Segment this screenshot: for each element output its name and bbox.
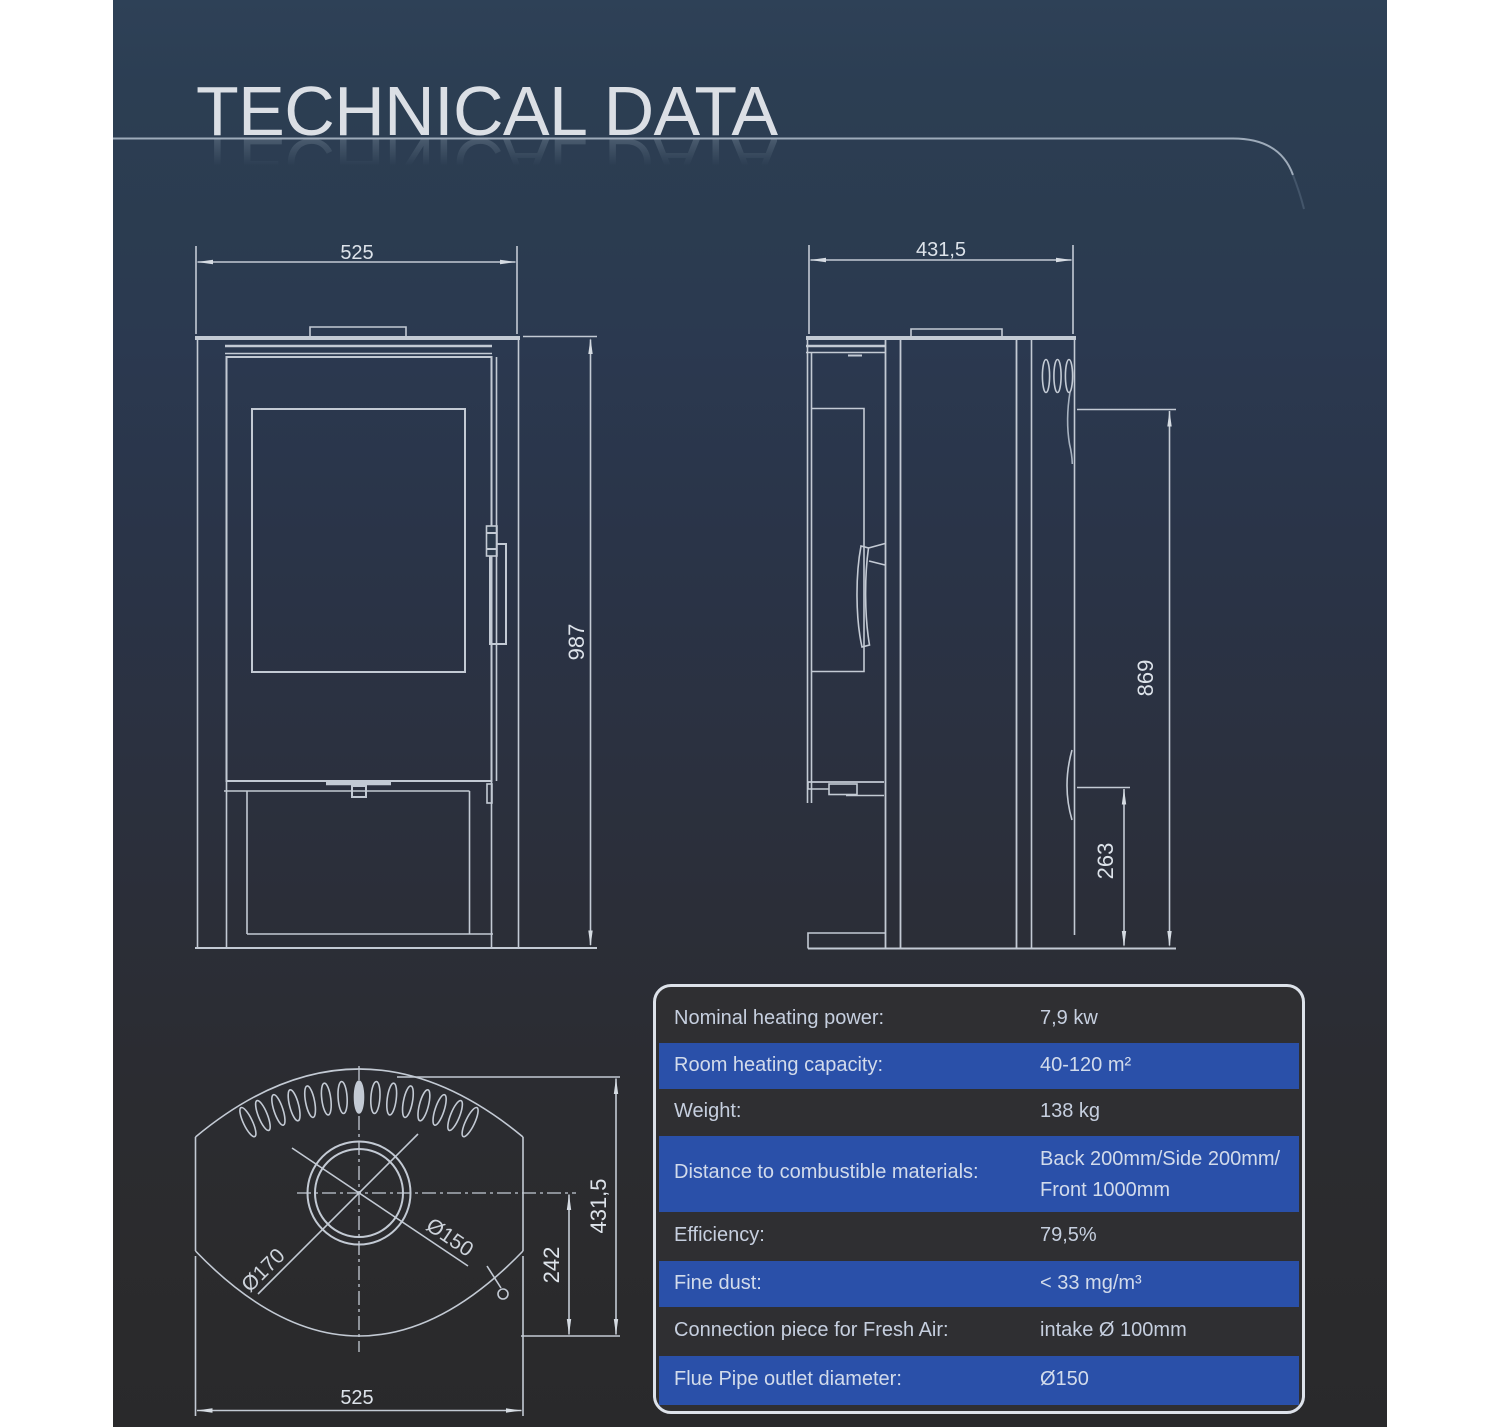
svg-text:242: 242 [539, 1247, 564, 1284]
svg-text:431,5: 431,5 [916, 239, 966, 261]
svg-text:987: 987 [564, 624, 589, 661]
svg-text:263: 263 [1093, 843, 1118, 880]
svg-text:869: 869 [1133, 660, 1158, 697]
svg-text:525: 525 [340, 1387, 373, 1409]
svg-text:431,5: 431,5 [586, 1178, 611, 1233]
svg-text:525: 525 [340, 242, 373, 264]
